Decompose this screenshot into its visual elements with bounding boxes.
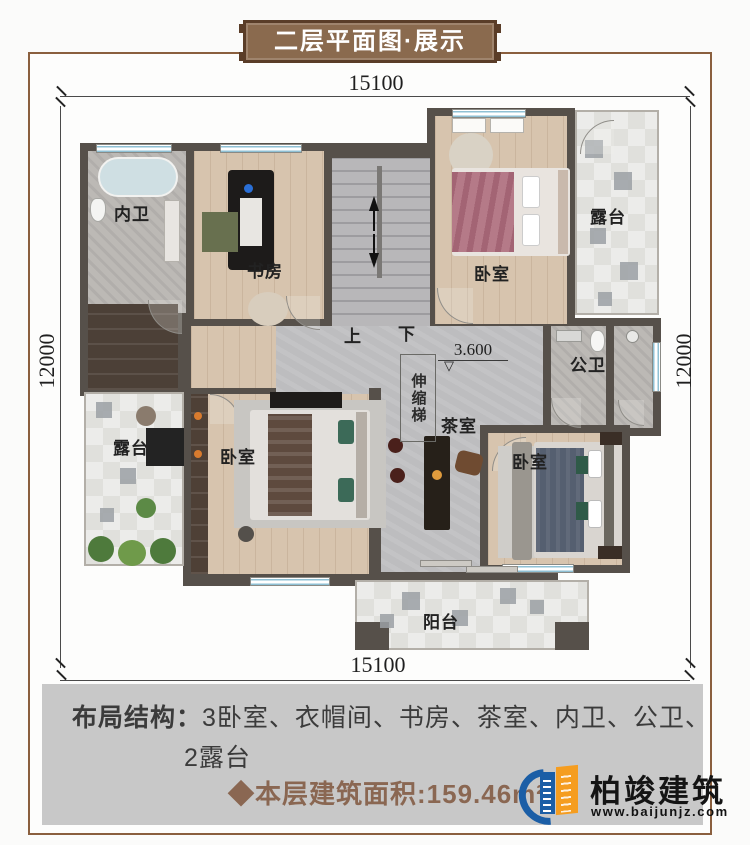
logo-building-blue-icon [540,772,555,814]
layout-structure-items: 3卧室、衣帽间、书房、茶室、内卫、公卫、 [202,704,711,732]
tea-lamp [432,470,442,480]
balcony-tile [530,600,544,614]
console-cabinet [191,394,208,574]
elevation-value: 3.600 [454,340,492,359]
label-stairs-up: 上 [344,322,362,347]
bed-top-blanket [452,172,514,252]
room-corridor [191,326,276,388]
plant [150,538,176,564]
plant [88,536,114,562]
balcony-tile [402,592,420,610]
stair-arrow-up-icon [369,196,379,211]
label-terrace-right: 露台 [590,203,626,228]
balcony-tile [380,614,394,628]
label-bedroom-top: 卧室 [474,260,510,285]
label-ladder: 伸缩梯 [408,373,429,424]
wardrobe-box [452,118,486,133]
dimension-line-left [60,106,61,668]
label-study: 书房 [247,257,283,282]
ladder-box: 伸缩梯 [400,354,436,442]
label-bedroom-left: 卧室 [220,443,256,468]
label-bedroom-bottom: 卧室 [512,448,548,473]
label-tearoom: 茶室 [441,412,477,437]
terrace-tile [598,292,612,306]
tea-stool [390,468,405,483]
label-terrace-left: 露台 [113,434,149,459]
dimension-bottom: 15100 [342,652,414,678]
title-banner: 二层平面图·展示 [243,20,497,63]
banner-notch [494,52,501,61]
pillow [588,450,602,478]
label-bath-private: 内卫 [114,200,150,225]
stair-arrow-stem [373,211,375,231]
bed-left-blanket [268,414,312,516]
media-console [270,392,342,408]
balcony-tile [500,588,516,604]
toilet [90,198,106,222]
pillow-green [576,456,588,474]
terrace-tile [96,402,112,418]
study-mat [202,212,238,252]
side-table [238,526,254,542]
company-logo: 柏竣建筑 www.baijunjz.com [512,760,742,832]
nightstand [598,546,622,559]
banner-notch [494,24,501,33]
sliding-door-panel [466,566,518,573]
bed-headboard [356,412,367,518]
window [96,144,172,153]
dimension-line-bottom [60,680,690,681]
terrace-tile [100,508,114,522]
vanity-counter [164,200,180,262]
planter-pot [136,406,156,426]
wardrobe-box [490,118,524,133]
decor-flower [194,450,202,458]
pillow-green [338,420,354,444]
desk-pad [240,198,262,246]
elevation-triangle-icon: ▽ [444,358,454,374]
page-title: 二层平面图·展示 [274,28,466,55]
desk-item [244,184,253,193]
toilet [590,330,605,352]
logo-building-orange-icon [556,765,578,815]
label-bath-public: 公卫 [570,351,606,376]
layout-structure-line2: 2露台 [184,738,251,774]
label-stairs-down: 下 [398,320,416,345]
pillow-green [338,478,354,502]
dimension-top: 15100 [340,70,412,96]
floor-plan-page: 二层平面图·展示 15100 15100 12000 12000 [0,0,750,845]
bed-headboard [558,170,568,254]
plant [118,540,146,566]
decor-flower [194,412,202,420]
dimension-right: 12000 [671,321,697,401]
window [250,577,330,586]
nightstand [600,432,622,445]
bed-headboard [604,444,614,556]
plant [136,498,156,518]
pillow [522,176,540,208]
logo-website: www.baijunjz.com [591,804,743,819]
pillow [522,214,540,246]
floor-area-text: ◆本层建筑面积:159.46m² [228,774,546,811]
sink [556,330,582,342]
window [220,144,302,153]
dimension-left: 12000 [34,321,60,401]
banner-notch [239,52,246,61]
banner-notch [239,24,246,33]
label-balcony: 阳台 [423,608,459,633]
layout-structure-line1: 布局结构：3卧室、衣帽间、书房、茶室、内卫、公卫、 [72,698,711,734]
bathtub [98,157,178,197]
shower-head [626,330,639,343]
window [452,109,526,118]
layout-structure-label: 布局结构： [72,704,202,732]
terrace-tile [614,172,632,190]
tea-console [424,436,450,530]
terrace-tile [620,262,638,280]
terrace-tile [590,228,606,244]
pillow [588,500,602,528]
window [652,342,661,392]
study-chair [248,292,288,326]
terrace-tile [120,468,136,484]
sliding-door-panel [420,560,472,567]
balcony-post [555,622,589,650]
stair-arrow-stem [373,234,375,254]
dimension-line-top [60,96,690,97]
pillow-green [576,502,588,520]
terrace-bench [146,428,184,466]
stair-arrow-down-icon [369,253,379,268]
